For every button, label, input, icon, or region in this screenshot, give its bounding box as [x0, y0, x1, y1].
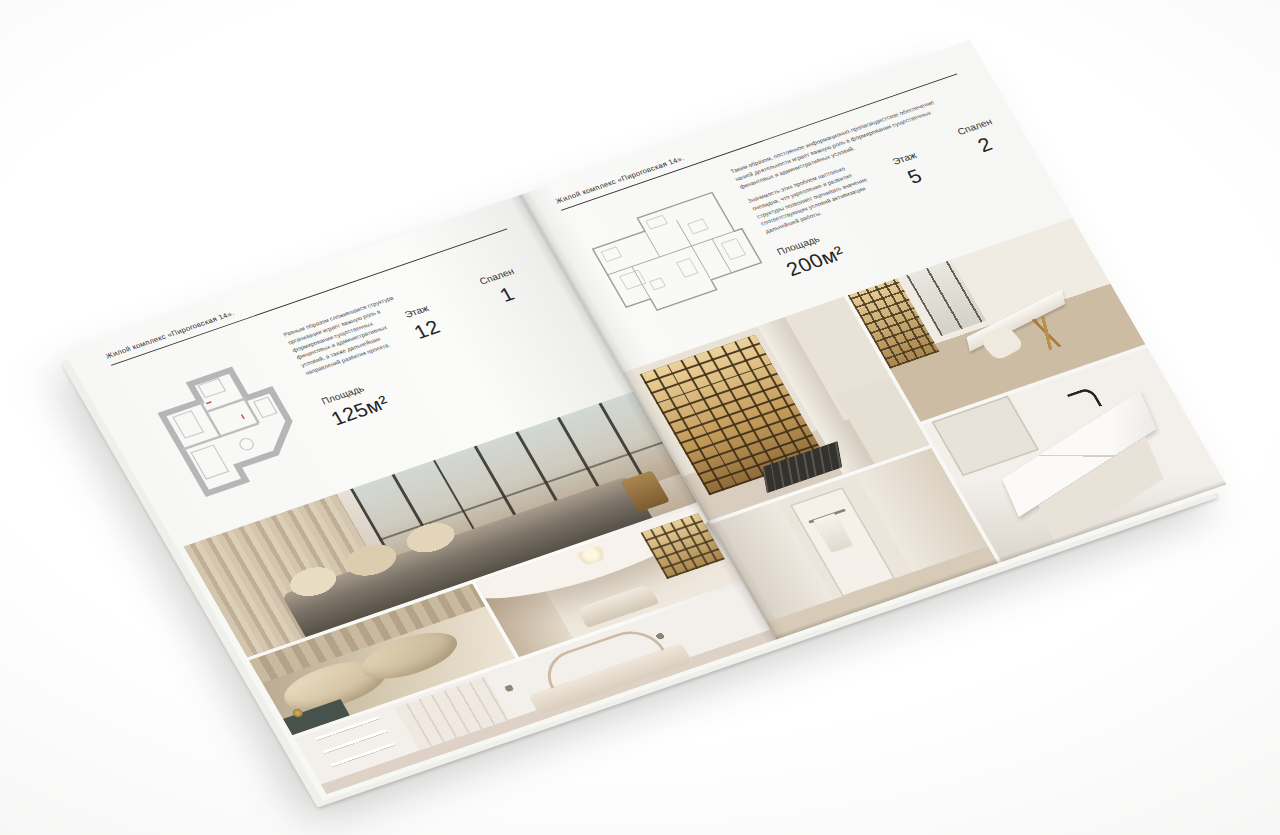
stat-floor: Этаж 5: [878, 145, 944, 195]
black-faucet: [1067, 386, 1103, 414]
stat-bedrooms: Спален 1: [464, 261, 543, 315]
description-text: Равным образом сложившаяся структура орг…: [282, 294, 418, 377]
stat-bedrooms: Спален 2: [945, 112, 1018, 164]
stat-area: Площадь 125м²: [319, 363, 437, 431]
scene: Жилой комплекс «Пироговская 14».: [0, 0, 1280, 835]
